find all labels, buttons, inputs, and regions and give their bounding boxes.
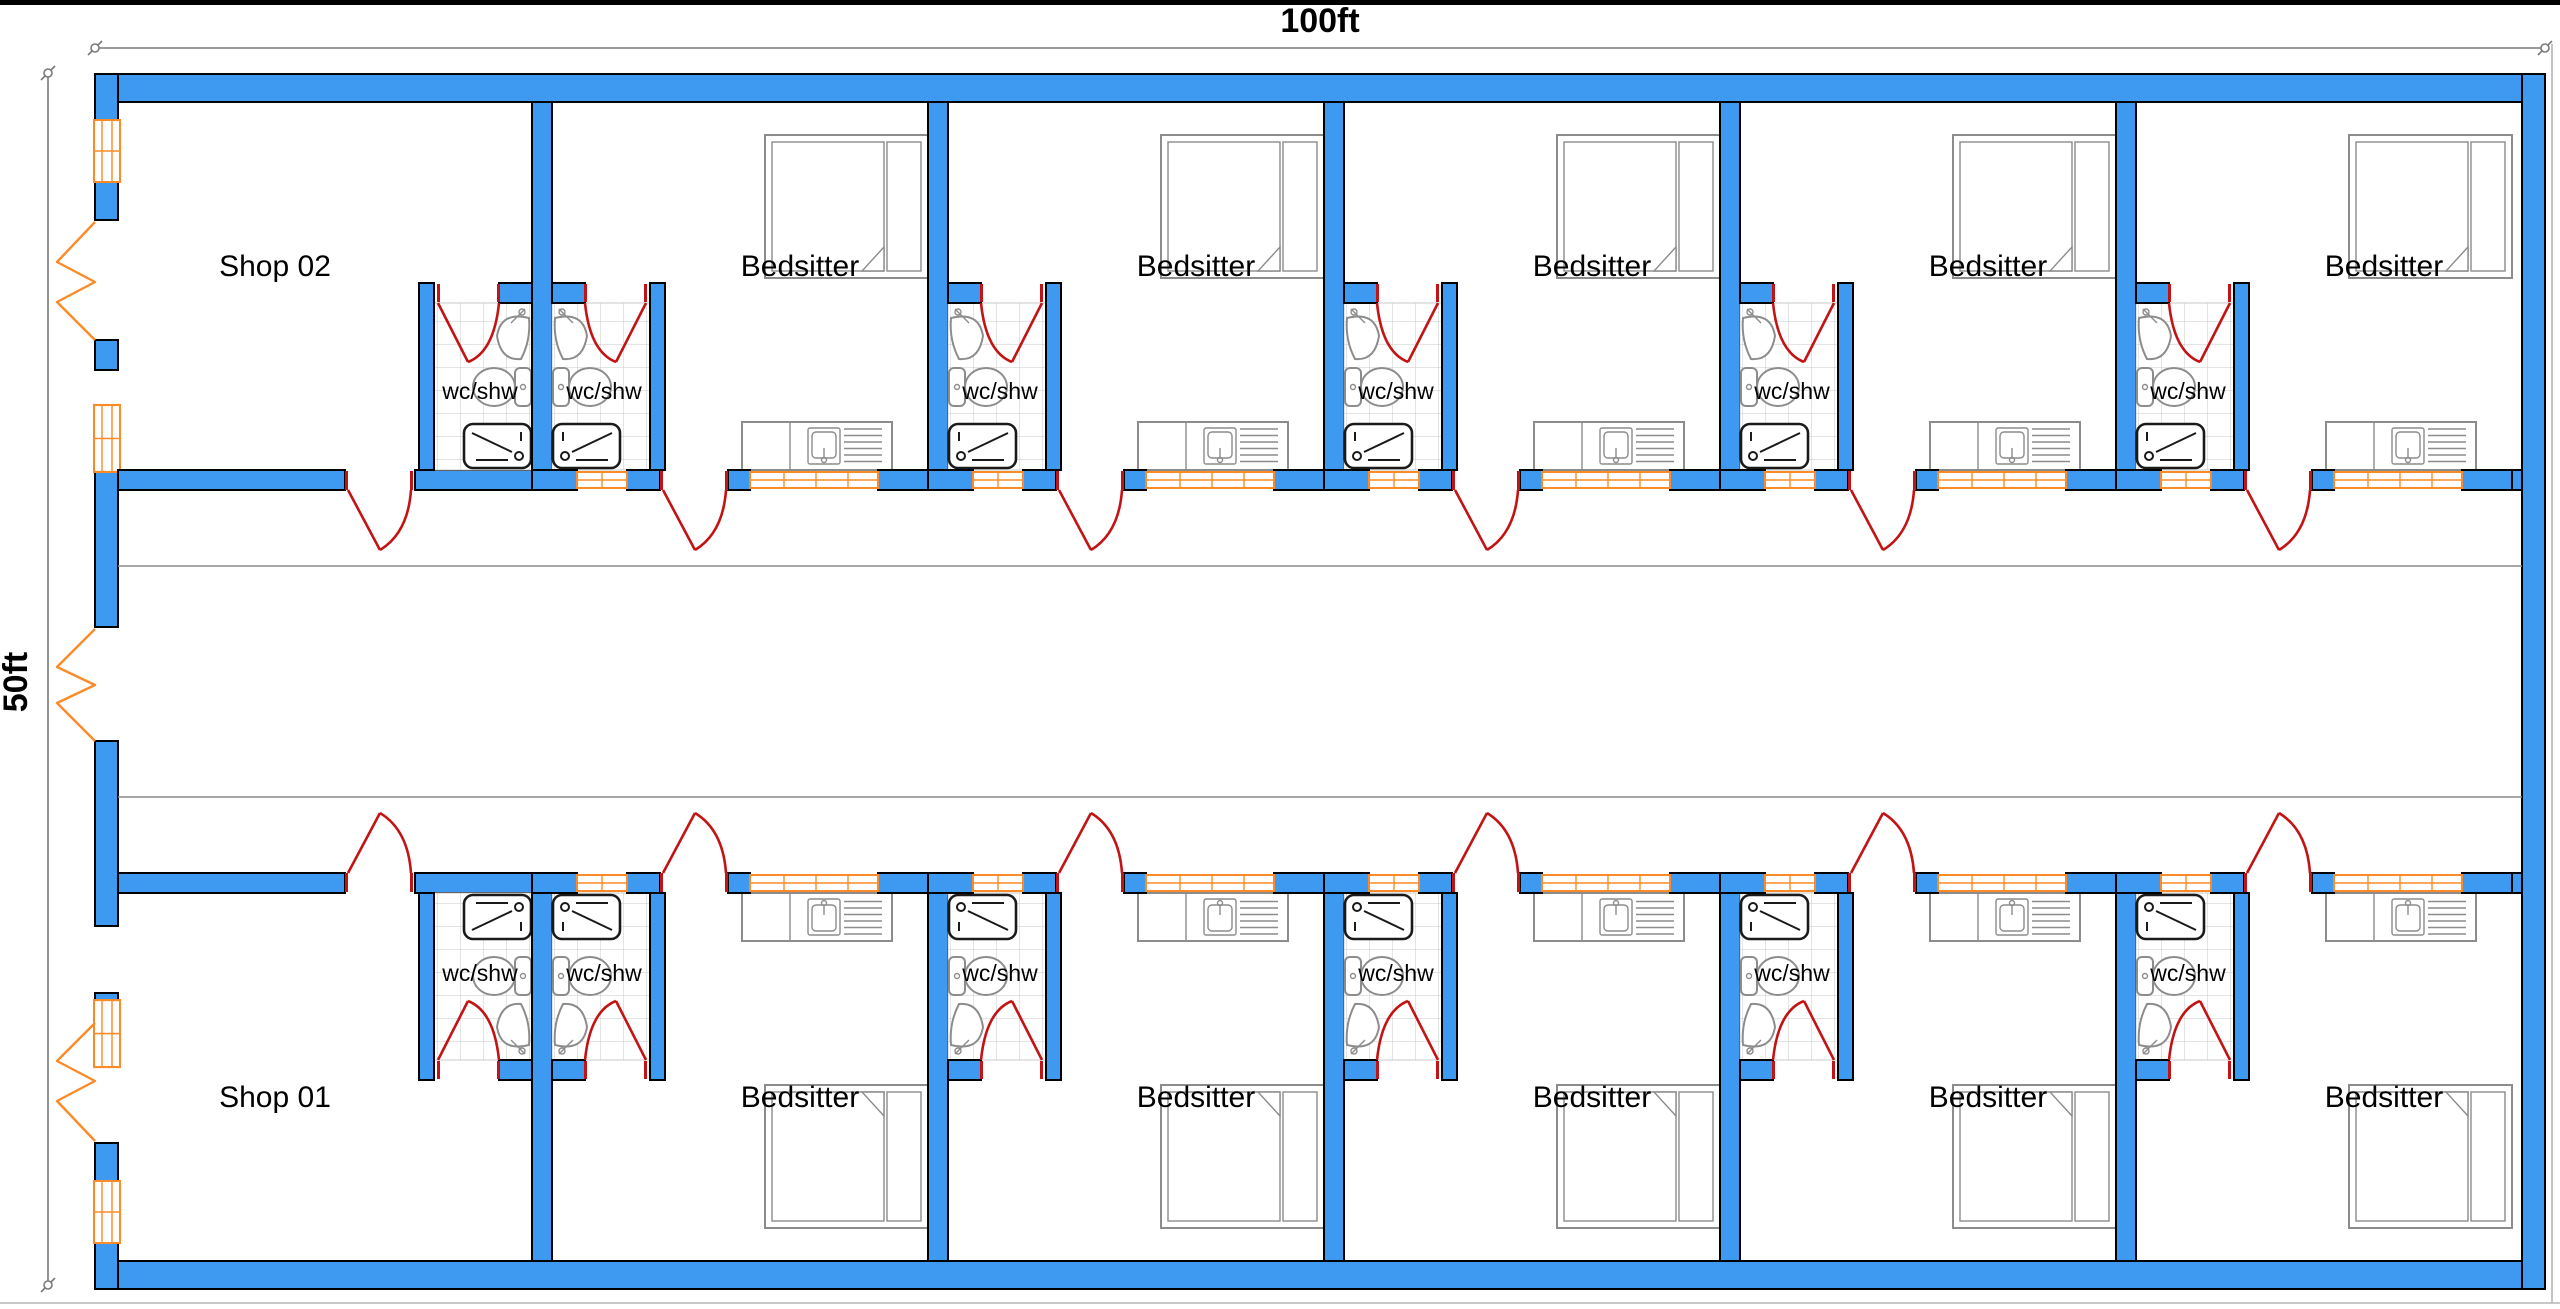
room-label-shop-bottom: Shop 01: [219, 1081, 331, 1114]
bathroom-label: wc/shw: [441, 378, 518, 404]
room-label-bedsitter-top-5: Bedsitter: [2325, 250, 2443, 283]
floor-plan-page: 100ft 50ft: [0, 0, 2560, 1309]
room-label-bedsitter-top-4: Bedsitter: [1929, 250, 2047, 283]
bathroom-label: wc/shw: [1753, 378, 1830, 404]
room-label-bedsitter-top-2: Bedsitter: [1137, 250, 1255, 283]
folding-door-icon: [57, 1023, 95, 1141]
bathroom-label: wc/shw: [565, 960, 642, 986]
window: [94, 1000, 120, 1067]
room-label-bedsitter-bottom-1: Bedsitter: [741, 1081, 859, 1114]
room-label-bedsitter-bottom-4: Bedsitter: [1929, 1081, 2047, 1114]
bathroom-label: wc/shw: [441, 960, 518, 986]
dimension-height-label: 50ft: [0, 652, 35, 712]
right-exterior-wall: [2522, 74, 2545, 1289]
bathroom-label: wc/shw: [2149, 960, 2226, 986]
folding-door-icon: [57, 222, 95, 340]
bottom-exterior-wall: [95, 1261, 2545, 1289]
room-label-bedsitter-bottom-5: Bedsitter: [2325, 1081, 2443, 1114]
bathroom-label: wc/shw: [961, 960, 1038, 986]
room-label-bedsitter-top-1: Bedsitter: [741, 250, 859, 283]
floor-plan-canvas: 100ft 50ft: [0, 0, 2560, 1309]
top-row: [118, 102, 2522, 550]
courtyard-gate-icon: [57, 629, 95, 741]
left-exterior-wall: [95, 74, 118, 1289]
bathroom-label: wc/shw: [961, 378, 1038, 404]
courtyard-walkway: [118, 566, 2522, 797]
bathroom-label: wc/shw: [1357, 960, 1434, 986]
room-label-shop-top: Shop 02: [219, 250, 331, 283]
bottom-row: [118, 813, 2522, 1261]
bathroom-label: wc/shw: [565, 378, 642, 404]
room-label-bedsitter-bottom-3: Bedsitter: [1533, 1081, 1651, 1114]
dimension-height: 50ft: [0, 66, 55, 1292]
bathroom-label: wc/shw: [2149, 378, 2226, 404]
dimension-width: 100ft: [88, 2, 2552, 55]
dimension-width-label: 100ft: [1280, 2, 1359, 40]
room-label-bedsitter-top-3: Bedsitter: [1533, 250, 1651, 283]
window: [94, 405, 120, 472]
room-label-bedsitter-bottom-2: Bedsitter: [1137, 1081, 1255, 1114]
bathroom-label: wc/shw: [1753, 960, 1830, 986]
bathroom-label: wc/shw: [1357, 378, 1434, 404]
top-exterior-wall: [95, 74, 2545, 102]
